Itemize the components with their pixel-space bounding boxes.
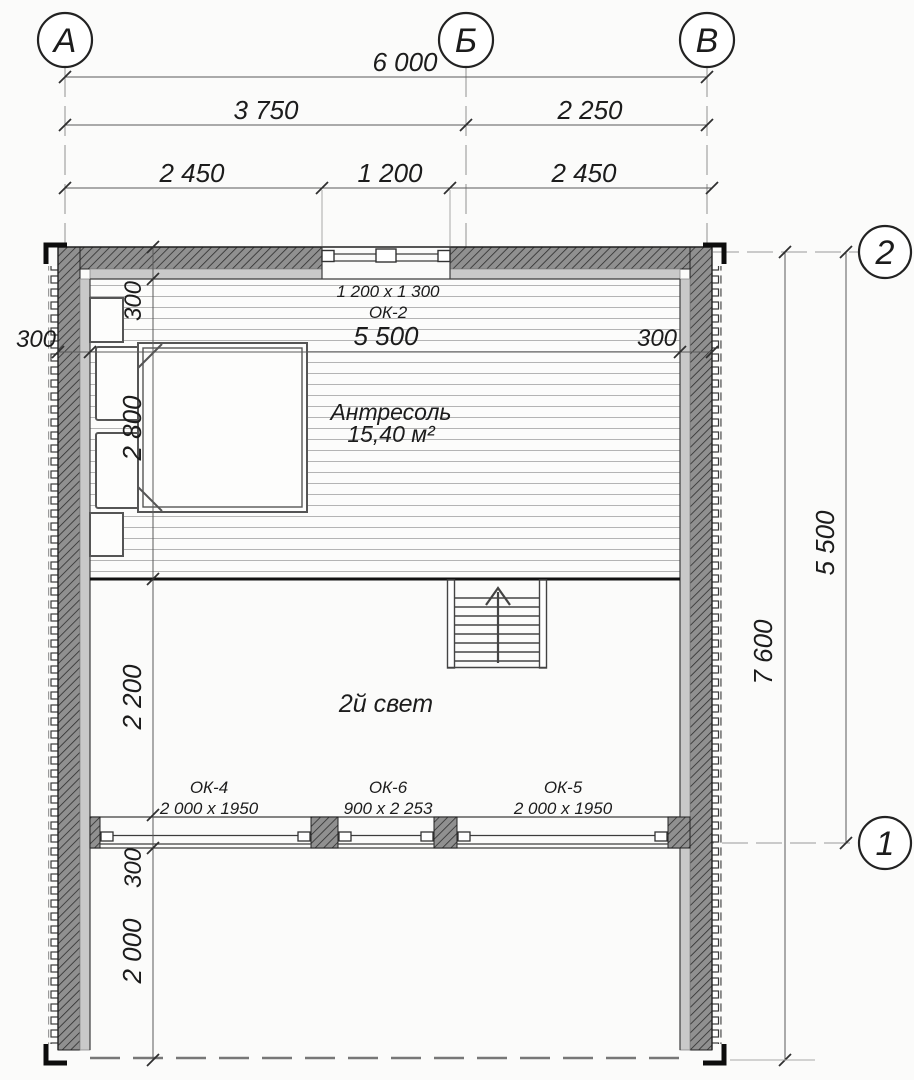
nightstand-top <box>90 298 123 342</box>
left-lining <box>80 279 90 1050</box>
axis-label-2: 2 <box>875 234 895 272</box>
pier-ok4-ok6 <box>311 817 338 848</box>
dim-seg-right: 2 450 <box>550 158 617 188</box>
pier-ok6-ok5 <box>434 817 457 848</box>
dim-left-2800: 2 800 <box>117 395 147 462</box>
axis-label-a: А <box>52 22 77 60</box>
dim-wall-left: 300 <box>16 326 57 353</box>
dim-room-width: 5 500 <box>353 321 419 351</box>
stair-stringer-left <box>448 580 455 668</box>
dim-left-2200: 2 200 <box>117 664 147 731</box>
window-ok4-tag: ОК-4 <box>190 778 228 797</box>
nightstand-bottom <box>90 513 123 556</box>
axis-label-v: В <box>696 22 719 60</box>
dim-right-inner: 5 500 <box>810 510 840 576</box>
window-ok4-size: 2 000 x 1950 <box>159 799 259 818</box>
floor-plan-drawing: А Б В 2 1 6 000 3 750 2 250 2 450 1 200 … <box>0 0 914 1080</box>
top-lining-right <box>450 269 680 279</box>
top-wall-right-segment <box>450 247 712 269</box>
room-void-name: 2й свет <box>338 690 433 718</box>
window-ok5-tag: ОК-5 <box>544 778 583 797</box>
right-lining <box>680 279 690 1050</box>
window-ok2-size: 1 200 x 1 300 <box>336 282 440 301</box>
dim-overall-width: 6 000 <box>372 47 438 77</box>
pier-right-corner <box>668 817 690 848</box>
top-lining-left <box>90 269 322 279</box>
dim-right-overall: 7 600 <box>748 619 778 685</box>
bed-mattress <box>138 343 307 512</box>
stair-stringer-right <box>540 580 547 668</box>
dim-span-bv: 2 250 <box>556 95 623 125</box>
dim-left-300b: 300 <box>120 847 147 888</box>
dim-left-300a: 300 <box>120 280 147 321</box>
top-wall-left-segment <box>58 247 322 269</box>
right-siding <box>712 266 722 1044</box>
pier-left-corner <box>90 817 100 848</box>
dim-seg-left: 2 450 <box>158 158 225 188</box>
ok2-frame-right <box>438 251 450 262</box>
axis-label-1: 1 <box>876 825 895 863</box>
left-siding <box>49 266 59 1044</box>
window-ok6-tag: ОК-6 <box>369 778 408 797</box>
window-ok2-tag: ОК-2 <box>369 303 408 322</box>
dim-seg-mid: 1 200 <box>357 158 423 188</box>
room-mezzanine-area: 15,40 м² <box>347 421 436 447</box>
window-ok6-size: 900 x 2 253 <box>344 799 433 818</box>
ok2-frame-left <box>322 251 334 262</box>
ok2-frame-center <box>376 249 396 262</box>
dim-left-2000: 2 000 <box>117 918 147 985</box>
window-ok5-size: 2 000 x 1950 <box>513 799 613 818</box>
dim-wall-right: 300 <box>637 325 678 352</box>
right-wall <box>690 247 712 1050</box>
left-wall <box>58 247 80 1050</box>
dim-span-ab: 3 750 <box>233 95 299 125</box>
axis-label-b: Б <box>455 22 477 60</box>
